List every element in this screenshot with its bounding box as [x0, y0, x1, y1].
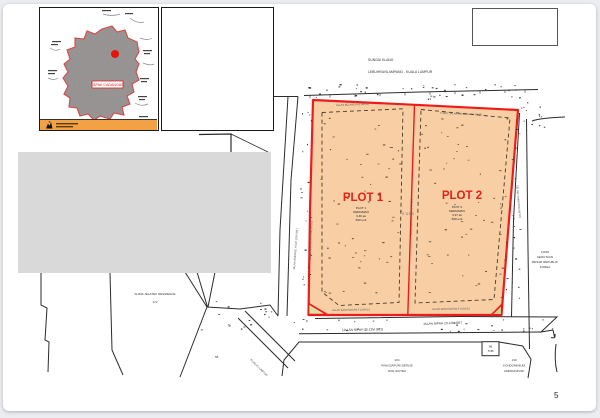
svg-text:98: 98 [489, 345, 493, 349]
svg-text:AMPANGPURI: AMPANGPURI [504, 369, 524, 373]
svg-text:KUALA LUMPUR: KUALA LUMPUR [249, 358, 269, 378]
svg-text:JALAN BANGSARAN 2 9M (E): JALAN BANGSARAN 2 9M (E) [409, 199, 414, 235]
svg-text:BESAR REPUBLIK: BESAR REPUBLIK [532, 260, 558, 264]
svg-text:PLOT 2: PLOT 2 [442, 190, 482, 202]
svg-text:KOREA: KOREA [540, 265, 551, 269]
svg-text:JALAN BANGSARAN 9 1/2M (E): JALAN BANGSARAN 9 1/2M (E) [332, 307, 370, 312]
svg-text:PANGSAPURI SERVIS: PANGSAPURI SERVIS [381, 364, 412, 368]
svg-text:139: 139 [511, 358, 516, 362]
svg-text:KEDUTAAN: KEDUTAAN [537, 255, 553, 259]
svg-text:SUNGAI KLANG: SUNGAI KLANG [368, 58, 394, 62]
svg-text:TAPAK CADANGAN: TAPAK CADANGAN [91, 83, 124, 87]
svg-text:KONDOMINIUM: KONDOMINIUM [503, 364, 526, 368]
svg-text:TNB: TNB [488, 349, 494, 353]
svg-text:500 unit: 500 unit [452, 217, 463, 221]
svg-text:NUE SUITES: NUE SUITES [388, 369, 406, 373]
svg-text:104: 104 [394, 358, 399, 362]
svg-text:JALAN BAKAWALI 9M (E): JALAN BAKAWALI 9M (E) [515, 185, 522, 218]
svg-text:172: 172 [152, 300, 157, 304]
svg-text:JALAN NIPAH 20.12M (66'): JALAN NIPAH 20.12M (66') [423, 321, 462, 326]
svg-text:LEBUHRAYA AMPANG - KUALA LUMPU: LEBUHRAYA AMPANG - KUALA LUMPUR [368, 70, 433, 74]
svg-text:11929: 11929 [541, 250, 549, 254]
svg-text:500 unit: 500 unit [356, 218, 367, 222]
svg-text:JALAN BANGSARAN 9 1/2M (E): JALAN BANGSARAN 9 1/2M (E) [432, 306, 470, 311]
svg-text:JALAN AMPANG HILIR 20M (66'): JALAN AMPANG HILIR 20M (66') [292, 228, 299, 270]
svg-text:SURIA JELATEK RESIDENCE: SURIA JELATEK RESIDENCE [135, 292, 176, 296]
svg-text:(JALAN NIPAH 20.12M (66')): (JALAN NIPAH 20.12M (66')) [342, 327, 383, 332]
svg-text:58: 58 [215, 355, 219, 359]
